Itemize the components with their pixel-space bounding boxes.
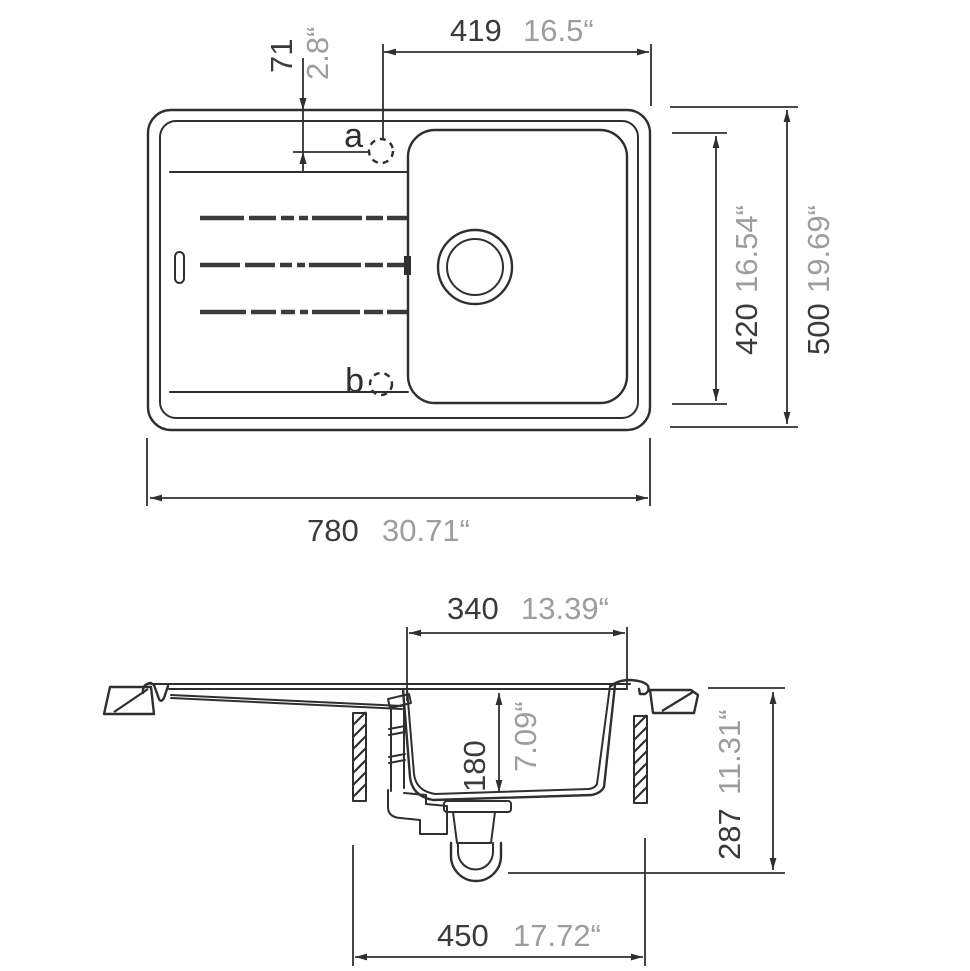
overflow-elbow [388, 790, 447, 834]
sink-outer-edge [148, 110, 650, 430]
section-view: 340 13.39“ 180 7.09“ 287 11.31“ 450 17.7… [104, 591, 785, 966]
dim-overall-width-mm: 500 [801, 303, 836, 355]
dim-bowl-depth: 180 7.09“ [457, 693, 543, 792]
sink-technical-drawing: a b 71 2.8“ 419 16.5“ 420 16.54“ [0, 0, 970, 971]
dim-faucet-offset-inch: 2.8“ [300, 27, 335, 80]
dim-bowl-length-inch: 16.54“ [729, 205, 764, 293]
dim-faucet-to-edge-inch: 16.5“ [523, 13, 594, 48]
drain-outer-circle [438, 230, 512, 304]
dim-cabinet-width-mm: 450 [437, 918, 489, 953]
drain-flange [444, 801, 511, 812]
tap-hole-a [369, 139, 393, 163]
dim-installation-depth-inch: 11.31“ [712, 709, 747, 795]
trap-neck [453, 812, 495, 843]
dim-bowl-top-width-mm: 340 [447, 591, 499, 626]
cabinet-panel-left [353, 712, 366, 801]
right-rim-edge [611, 680, 649, 694]
tap-hole-a-label: a [344, 117, 363, 155]
dim-faucet-to-edge-mm: 419 [450, 13, 502, 48]
top-view: a b 71 2.8“ 419 16.5“ 420 16.54“ [147, 13, 836, 548]
dim-overall-length-inch: 30.71“ [382, 513, 470, 548]
drain-trap [388, 790, 511, 881]
dim-bowl-depth-inch: 7.09“ [508, 701, 543, 772]
dim-faucet-offset-mm: 71 [264, 39, 299, 73]
drawing-canvas: a b 71 2.8“ 419 16.5“ 420 16.54“ [0, 0, 970, 971]
drainboard-ribs [200, 218, 407, 312]
overflow-slot [175, 252, 184, 283]
countertop-left [104, 687, 154, 714]
dim-cabinet-width-inch: 17.72“ [513, 918, 601, 953]
rib-bowl-junction [404, 256, 411, 275]
drain-inner-circle [447, 239, 503, 295]
dim-overall-width-inch: 19.69“ [801, 205, 836, 293]
cabinet-panel-right [634, 715, 647, 803]
trap-cup-inner [458, 843, 493, 870]
dim-bowl-length: 420 16.54“ [672, 133, 764, 404]
countertop-right [650, 690, 698, 713]
drainboard [170, 172, 411, 392]
dim-cabinet-width: 450 17.72“ [353, 838, 645, 966]
dim-bowl-length-mm: 420 [729, 303, 764, 355]
dim-bowl-depth-mm: 180 [457, 740, 492, 792]
dim-bowl-top-width-inch: 13.39“ [521, 591, 609, 626]
sink-inner-rim [160, 121, 638, 418]
dim-installation-depth-mm: 287 [712, 808, 747, 860]
bowl-outline [408, 130, 627, 403]
dim-overall-length-mm: 780 [307, 513, 359, 548]
left-rim-groove [143, 683, 168, 701]
tap-hole-b-label: b [345, 362, 364, 400]
dim-overall-length: 780 30.71“ [147, 438, 650, 548]
